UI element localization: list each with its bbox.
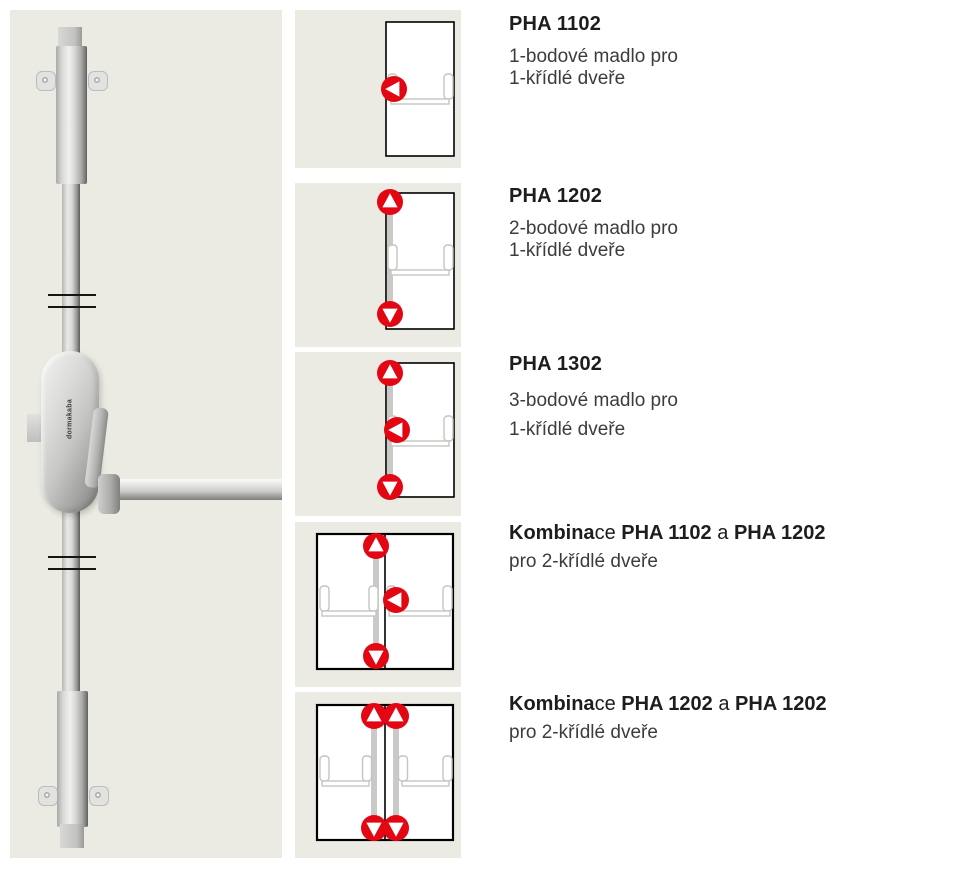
heading-part: PHA 1202 — [734, 522, 826, 544]
heading-part: ce — [595, 693, 622, 715]
product-code: PHA 1202 — [509, 185, 909, 208]
lock-point-up-icon — [377, 360, 403, 386]
product-code: Kombinace PHA 1202 a PHA 1202 — [509, 693, 909, 716]
locking-rod — [394, 716, 399, 828]
heading-part: a — [713, 693, 735, 715]
heading-part: PHA 1202 — [735, 693, 827, 715]
rod-break-mark — [48, 568, 96, 570]
lock-point-down-icon — [377, 474, 403, 500]
heading-part: PHA 1202 — [621, 693, 713, 715]
push-bar-mount — [444, 74, 453, 99]
bottom-latch-guide — [57, 691, 88, 827]
product-description-line: 2-bodové madlo pro — [509, 218, 909, 240]
mounting-ear — [89, 786, 109, 806]
diagram-pha-1202 — [295, 183, 461, 347]
push-bar-mount — [388, 245, 397, 270]
lock-point-left-icon — [383, 587, 409, 613]
mounting-ear — [88, 71, 108, 91]
product-photo-panel: dormakaba — [10, 10, 282, 858]
catalog-section: dormakaba — [0, 0, 977, 870]
heading-part: Kombina — [509, 693, 595, 715]
diagram-pha-1102 — [295, 10, 461, 168]
product-description-line: 1-křídlé dveře — [509, 240, 909, 262]
lock-point-up-icon — [363, 533, 389, 559]
diagram-kombinace-1202-1202 — [295, 692, 461, 858]
product-code: PHA 1102 — [509, 13, 909, 36]
push-bar-mount — [444, 245, 453, 270]
push-bar-mount — [443, 756, 452, 781]
lock-point-down-icon — [383, 815, 409, 841]
mounting-ear — [36, 71, 56, 91]
product-description-line: pro 2-křídlé dveře — [509, 551, 909, 573]
heading-part: a — [712, 522, 734, 544]
push-bar-mount — [443, 586, 452, 611]
product-description-line: 3-bodové madlo pro — [509, 386, 909, 415]
brand-logo-text: dormakaba — [67, 399, 74, 439]
lock-point-up-icon — [377, 189, 403, 215]
diagram-kombinace-1102-1202 — [295, 522, 461, 687]
rod-break-mark — [48, 306, 96, 308]
lock-point-down-icon — [377, 301, 403, 327]
product-description-line: 1-křídlé dveře — [509, 415, 909, 444]
mounting-ear — [38, 786, 58, 806]
lock-point-up-icon — [383, 703, 409, 729]
product-description-line: 1-bodové madlo pro — [509, 46, 909, 68]
product-code: Kombinace PHA 1102 a PHA 1202 — [509, 522, 909, 545]
product-description-line: 1-křídlé dveře — [509, 68, 909, 90]
push-bar-top-view — [402, 781, 449, 786]
push-bar-mount — [320, 756, 329, 781]
push-bar-top-view — [322, 781, 369, 786]
lock-point-left-icon — [381, 76, 407, 102]
heading-part: ce — [595, 522, 622, 544]
rod-break-mark — [48, 294, 96, 296]
bottom-latch-bolt — [60, 824, 84, 848]
product-info-pha-1202: PHA 1202 2-bodové madlo pro 1-křídlé dve… — [509, 182, 909, 262]
rod-break-mark — [48, 556, 96, 558]
push-bar-mount — [369, 586, 378, 611]
product-info-pha-1102: PHA 1102 1-bodové madlo pro 1-křídlé dve… — [509, 10, 909, 90]
push-bar — [112, 479, 282, 500]
product-info-kombinace-1102-1202: Kombinace PHA 1102 a PHA 1202 pro 2-kříd… — [509, 519, 909, 573]
lock-point-left-icon — [384, 417, 410, 443]
product-code: PHA 1302 — [509, 353, 909, 376]
push-bar-mount — [444, 416, 453, 441]
heading-part: Kombina — [509, 522, 595, 544]
top-latch-guide — [56, 46, 87, 184]
push-bar-top-view — [322, 611, 376, 616]
product-description-line: pro 2-křídlé dveře — [509, 722, 909, 744]
push-bar-mount — [363, 756, 372, 781]
bar-collar — [98, 474, 120, 514]
diagram-pha-1302 — [295, 352, 461, 516]
lock-point-down-icon — [363, 643, 389, 669]
locking-rod — [372, 716, 377, 828]
push-bar-mount — [399, 756, 408, 781]
product-info-kombinace-1202-1202: Kombinace PHA 1202 a PHA 1202 pro 2-kříd… — [509, 690, 909, 744]
heading-part: PHA 1102 — [621, 522, 711, 544]
push-bar-top-view — [391, 270, 449, 275]
push-bar-mount — [320, 586, 329, 611]
product-info-pha-1302: PHA 1302 3-bodové madlo pro 1-křídlé dve… — [509, 350, 909, 444]
